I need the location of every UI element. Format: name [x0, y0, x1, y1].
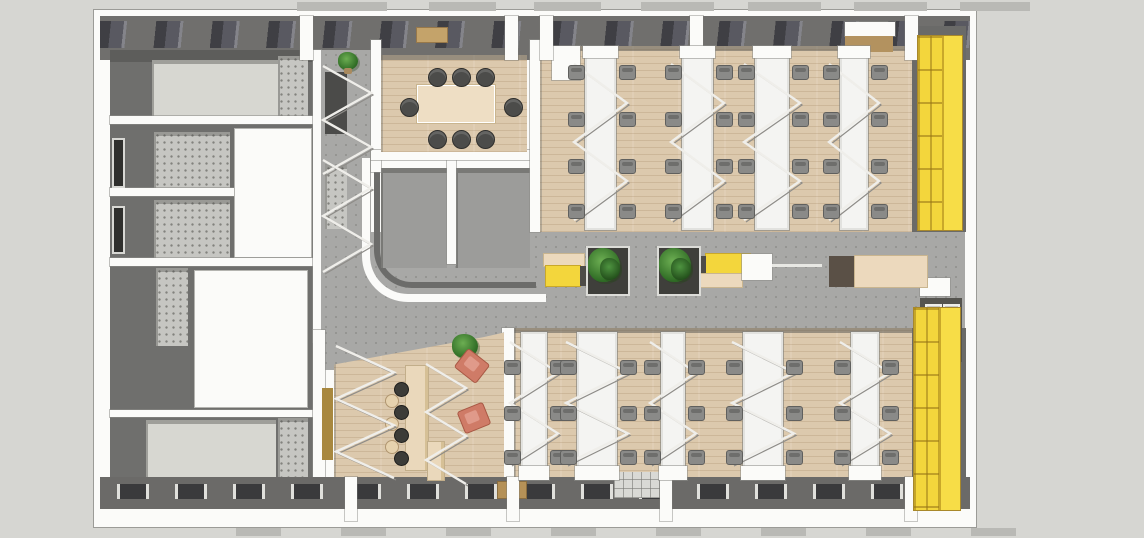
meeting-chair [476, 68, 495, 87]
desk-row-stub [519, 466, 549, 480]
desk-row-stub [849, 466, 881, 480]
core-room-concrete-2 [154, 200, 230, 258]
meeting-chair [428, 130, 447, 149]
desk-chair [620, 450, 637, 465]
core-room-northwest [152, 60, 278, 116]
desk-chair [882, 360, 899, 375]
facade-pier-north [540, 16, 553, 60]
facade-pier-south [345, 477, 357, 521]
desk-row-stub [838, 46, 870, 58]
meeting-chair [428, 68, 447, 87]
desk-row-stub [583, 46, 618, 58]
desk-chair [619, 204, 636, 219]
core-room-southwest [146, 420, 276, 478]
desk-chair [644, 450, 661, 465]
focus-room-b-floor [456, 168, 530, 268]
floor-plan-render [0, 0, 1144, 538]
planter-plant-icon [671, 258, 691, 280]
core-concrete-strip-3 [278, 418, 308, 478]
core-concrete-strip-1 [278, 56, 308, 118]
desk-chair [504, 450, 521, 465]
desk-chair [665, 204, 682, 219]
desk-row-stub [741, 466, 785, 480]
desk-chair [823, 65, 840, 80]
bench-top-beige [544, 254, 584, 266]
facade-pier-north [505, 16, 518, 60]
desk-chair [560, 450, 577, 465]
meeting-chair [476, 130, 495, 149]
meeting-chair [504, 98, 523, 117]
desk-chair [504, 406, 521, 421]
desk-chair [688, 450, 705, 465]
core-door-2 [112, 206, 125, 254]
core-wall-band-3 [110, 258, 314, 266]
desk-chair [560, 360, 577, 375]
stair-railing-icon [334, 344, 396, 480]
desk-chair [716, 159, 733, 174]
elevator-shaft-2 [194, 270, 308, 408]
desk-chair [665, 65, 682, 80]
desk-chair [882, 450, 899, 465]
desk-row-stub [575, 466, 619, 480]
desk-chair [871, 159, 888, 174]
desk-truss-icon [648, 340, 698, 466]
desk-chair [792, 112, 809, 127]
desk-chair [620, 360, 637, 375]
south-facade-band [100, 477, 970, 521]
desk-chair [792, 204, 809, 219]
desk-chair [882, 406, 899, 421]
desk-truss-icon [669, 62, 726, 222]
table-end-cap [829, 256, 855, 287]
core-wall-band-4 [110, 410, 314, 417]
desk-chair [716, 204, 733, 219]
desk-chair [738, 159, 755, 174]
exterior-slab-south [236, 528, 281, 536]
south-facade-windows [104, 484, 966, 499]
desk-chair [620, 406, 637, 421]
exterior-slab-north [854, 2, 927, 11]
desk-chair [823, 112, 840, 127]
facade-pier-south [660, 477, 672, 521]
corridor-bench-group [742, 254, 842, 296]
exterior-slab-south [761, 528, 806, 536]
desk-row-stub [753, 46, 791, 58]
desk-chair [726, 360, 743, 375]
exterior-slab-south [971, 528, 1016, 536]
desk-truss-icon [564, 340, 630, 466]
corridor-white-desk [742, 254, 772, 280]
desk-chair [786, 360, 803, 375]
elevator-shaft-1 [234, 128, 312, 258]
desk-chair [792, 65, 809, 80]
corridor-desk-edge [772, 264, 822, 267]
desk-truss-icon [742, 62, 802, 222]
table-top-beige [855, 256, 927, 287]
core-room-concrete-1 [154, 132, 230, 190]
desk-chair [786, 406, 803, 421]
desk-chair [644, 406, 661, 421]
core-wall-band-1 [110, 116, 314, 124]
desk-chair [568, 159, 585, 174]
desk-chair [716, 112, 733, 127]
exterior-slab-south [866, 528, 911, 536]
exterior-slab-north [429, 2, 496, 11]
desk-row-stub [680, 46, 715, 58]
desk-chair [738, 204, 755, 219]
bench-seat-yellow [546, 266, 580, 286]
desk-chair [716, 65, 733, 80]
corridor-bench-group [829, 256, 929, 298]
exterior-slab-north [297, 2, 387, 11]
desk-chair [871, 204, 888, 219]
building-footprint [94, 10, 976, 527]
facade-pier-north [905, 16, 918, 60]
desk-truss-icon [508, 340, 560, 466]
core-wall-band-2 [110, 188, 236, 196]
exterior-slab-north [534, 2, 601, 11]
desk-chair [823, 204, 840, 219]
exterior-slab-south [551, 528, 596, 536]
exterior-slab-north [641, 2, 714, 11]
exterior-slab-south [656, 528, 701, 536]
desk-chair [568, 65, 585, 80]
locker-wall [918, 36, 962, 230]
meeting-table [418, 86, 494, 122]
core-concrete-strip-2 [156, 268, 188, 346]
meeting-chair [452, 68, 471, 87]
desk-truss-icon [838, 340, 892, 466]
focus-room-a-floor [381, 168, 447, 268]
desk-chair [688, 406, 705, 421]
desk-chair [568, 204, 585, 219]
desk-truss-icon [572, 62, 629, 222]
stair-railing-icon [424, 362, 468, 486]
desk-chair [726, 406, 743, 421]
exterior-slab-north [960, 2, 1030, 11]
core-east-wall [313, 50, 321, 342]
exterior-slab-north [748, 2, 821, 11]
desk-chair [560, 406, 577, 421]
desk-chair [688, 360, 705, 375]
meeting-chair [452, 130, 471, 149]
desk-chair [504, 360, 521, 375]
locker-wall [914, 308, 960, 510]
facade-pier-north [300, 16, 313, 60]
exterior-slab-south [341, 528, 386, 536]
facade-pier-south [507, 477, 519, 521]
desk-chair [871, 112, 888, 127]
exterior-slab-south [446, 528, 491, 536]
desk-chair [619, 112, 636, 127]
desk-chair [834, 360, 851, 375]
northeast-wall-block [845, 22, 895, 36]
desk-truss-icon [730, 340, 796, 466]
desk-chair [644, 360, 661, 375]
desk-chair [871, 65, 888, 80]
desk-chair [568, 112, 585, 127]
desk-chair [834, 406, 851, 421]
desk-chair [834, 450, 851, 465]
mustard-cabinet [322, 388, 333, 460]
desk-chair [619, 159, 636, 174]
stair-railing-icon [321, 158, 373, 274]
desk-chair [792, 159, 809, 174]
meeting-chair [400, 98, 419, 117]
desk-chair [726, 450, 743, 465]
desk-chair [665, 159, 682, 174]
focus-rooms-divider-wall [447, 160, 456, 264]
desk-chair [823, 159, 840, 174]
desk-chair [665, 112, 682, 127]
desk-chair [738, 65, 755, 80]
desk-row-stub [659, 466, 687, 480]
bench-top-beige [698, 274, 742, 287]
meeting-room-east-wall [530, 40, 540, 232]
desk-chair [738, 112, 755, 127]
desk-truss-icon [827, 62, 881, 222]
desk-chair [619, 65, 636, 80]
desk-chair [786, 450, 803, 465]
planter-plant-icon [600, 258, 620, 280]
core-door-1 [112, 138, 125, 188]
south-facade-outer-wall [100, 509, 970, 521]
bar-stool-dark [394, 451, 409, 466]
north-band-credenza [417, 28, 447, 42]
